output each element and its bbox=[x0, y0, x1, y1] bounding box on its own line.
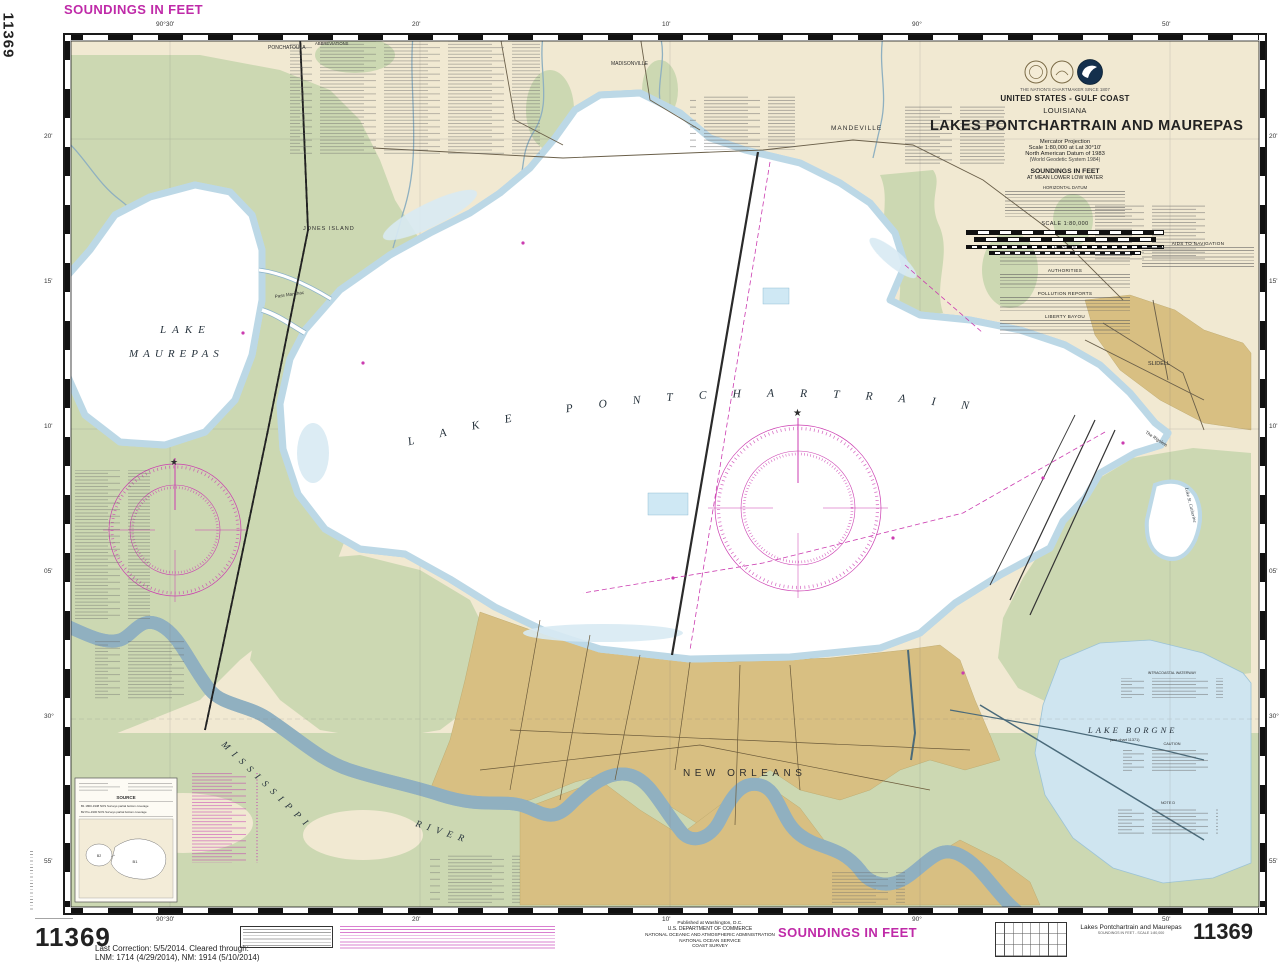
lat-label: 20' bbox=[1269, 133, 1277, 140]
lake-maurepas-label-2: MAUREPAS bbox=[128, 348, 224, 360]
correction-line-2: LNM: 1714 (4/29/2014), NM: 1914 (5/10/20… bbox=[95, 953, 260, 962]
lat-label: 10' bbox=[1269, 423, 1277, 430]
source-table-title: SOURCE bbox=[116, 795, 135, 800]
omb-note bbox=[35, 918, 73, 921]
correction-note: Last Correction: 5/5/2014. Cleared throu… bbox=[95, 944, 260, 962]
lat-label: 55' bbox=[1269, 858, 1277, 865]
lat-label: 30° bbox=[44, 713, 54, 720]
lat-label: 20' bbox=[44, 133, 52, 140]
boxed-note bbox=[240, 926, 333, 948]
note-authorities-title: AUTHORITIES bbox=[1000, 268, 1130, 273]
lat-label: 15' bbox=[44, 278, 52, 285]
jones-island-label: JONES ISLAND bbox=[303, 226, 355, 232]
lake-maurepas-label-1: LAKE bbox=[159, 324, 211, 336]
chart-notes-column: HEIGHTS AUTHORITIES POLLUTION REPORTS LI… bbox=[1000, 242, 1130, 334]
lon-label: 90°30' bbox=[156, 21, 174, 28]
lake-borgne-sublabel: (see chart 11371) bbox=[1110, 738, 1140, 742]
title-block: THE NATION'S CHARTMAKER SINCE 1807 UNITE… bbox=[930, 58, 1200, 257]
note-aids-title: AIDS TO NAVIGATION bbox=[1142, 241, 1254, 246]
state-heading: LOUISIANA bbox=[930, 106, 1200, 115]
note-liberty-title: LIBERTY BAYOU bbox=[1000, 314, 1130, 319]
chart-sheet: SOUNDINGS IN FEET 11369 90°30' 20' 10' 9… bbox=[0, 0, 1280, 962]
ponchatoula-label: PONCHATOULA bbox=[268, 45, 306, 51]
boxed-note-body bbox=[243, 929, 331, 946]
coast-survey-seal-icon bbox=[1025, 61, 1047, 83]
aids-note-column: AIDS TO NAVIGATION bbox=[1142, 238, 1254, 267]
source-zone-label: B1 bbox=[133, 859, 139, 864]
lon-label: 90°30' bbox=[156, 916, 174, 923]
slidell-label: SLIDELL bbox=[1148, 361, 1170, 367]
note-caution-title: CAUTION bbox=[1163, 742, 1180, 746]
source-diagram-inset: SOURCE B1 1800-1938 NOS Surveys partial … bbox=[75, 778, 177, 902]
margin-micro-print bbox=[30, 851, 33, 911]
note-d-title: NOTE D bbox=[1161, 801, 1176, 805]
lat-label: 30° bbox=[1269, 713, 1279, 720]
lat-label: 05' bbox=[1269, 568, 1277, 575]
lake-borgne-label: LAKE BORGNE bbox=[1087, 725, 1177, 735]
madisonville-label: MADISONVILLE bbox=[611, 61, 649, 67]
agency-seals bbox=[1022, 58, 1108, 86]
note-heights-title: HEIGHTS bbox=[1000, 245, 1130, 250]
compass-star-icon: ★ bbox=[170, 457, 178, 467]
chart-title: LAKES PONTCHARTRAIN AND MAUREPAS bbox=[930, 118, 1200, 134]
datum-note-paragraph bbox=[1005, 191, 1125, 217]
mandeville-label: MANDEVILLE bbox=[831, 125, 882, 132]
region-heading: UNITED STATES - GULF COAST bbox=[930, 94, 1200, 103]
note-liberty-body bbox=[1000, 320, 1130, 334]
note-icw-title: INTRACOASTAL WATERWAY bbox=[1148, 671, 1197, 675]
corrections-grid bbox=[995, 922, 1067, 957]
lon-label: 50' bbox=[1162, 21, 1170, 28]
caution-paragraph-magenta bbox=[340, 926, 555, 951]
lon-label: 20' bbox=[412, 21, 420, 28]
chart-number-side: 11369 bbox=[0, 13, 16, 59]
publisher-line-5: COAST SURVEY bbox=[580, 943, 840, 949]
lat-label: 15' bbox=[1269, 278, 1277, 285]
compass-star-icon: ★ bbox=[793, 408, 802, 419]
lon-label: 90° bbox=[912, 916, 922, 923]
lon-label: 20' bbox=[412, 916, 420, 923]
source-row: B1 1800-1938 NOS Surveys partial bottom … bbox=[81, 804, 149, 808]
note-aids-body bbox=[1142, 247, 1254, 267]
soundings-heading: SOUNDINGS IN FEET bbox=[930, 168, 1200, 175]
note-pollution-title: POLLUTION REPORTS bbox=[1000, 291, 1130, 296]
source-zone-label: B2 bbox=[97, 854, 101, 858]
new-orleans-label: NEW ORLEANS bbox=[683, 768, 806, 779]
soundings-in-feet-top: SOUNDINGS IN FEET bbox=[64, 2, 203, 17]
lat-label: 05' bbox=[44, 568, 52, 575]
soundings-subheading: AT MEAN LOWER LOW WATER bbox=[930, 175, 1200, 181]
chart-number-bottom-right: 11369 bbox=[1193, 919, 1253, 945]
note-authorities-body bbox=[1000, 274, 1130, 288]
footer-title: Lakes Pontchartrain and Maurepas bbox=[1075, 924, 1187, 931]
note-heights-body bbox=[1000, 251, 1130, 265]
agency-motto: THE NATION'S CHARTMAKER SINCE 1807 bbox=[930, 87, 1200, 92]
abbreviations-title: ABBREVIATIONS bbox=[315, 41, 349, 46]
horizontal-datum-heading: HORIZONTAL DATUM bbox=[930, 185, 1200, 190]
footer-title-block: Lakes Pontchartrain and Maurepas SOUNDIN… bbox=[1075, 924, 1187, 935]
note-pollution-body bbox=[1000, 297, 1130, 311]
source-row: B2 Pre-1900 NOS Surveys partial bottom c… bbox=[81, 810, 147, 814]
scale-bar-nautical bbox=[966, 230, 1164, 235]
lat-label: 55' bbox=[44, 858, 52, 865]
lon-label: 50' bbox=[1162, 916, 1170, 923]
soundings-in-feet-bottom: SOUNDINGS IN FEET bbox=[778, 925, 917, 940]
commerce-seal-icon bbox=[1051, 61, 1073, 83]
datum-line-2: (World Geodetic System 1984) bbox=[930, 157, 1200, 163]
correction-line-1: Last Correction: 5/5/2014. Cleared throu… bbox=[95, 944, 260, 953]
lon-label: 10' bbox=[662, 21, 670, 28]
scale-caption: SCALE 1:80,000 bbox=[930, 221, 1200, 227]
lat-label: 10' bbox=[44, 423, 52, 430]
footer-subtitle: SOUNDINGS IN FEET - SCALE 1:80,000 bbox=[1075, 931, 1187, 935]
lon-label: 90° bbox=[912, 21, 922, 28]
